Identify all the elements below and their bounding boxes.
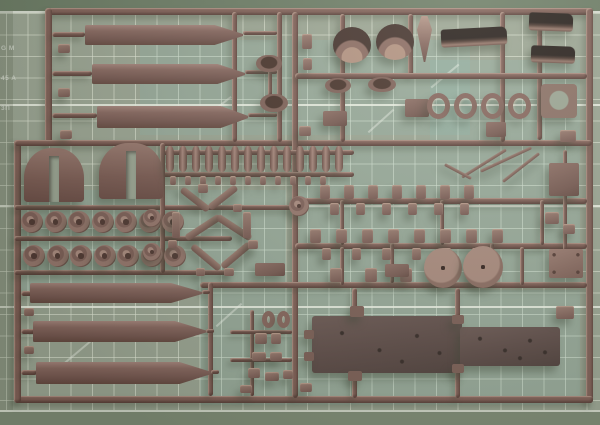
suspension-pin [205, 146, 213, 172]
rail-fitting [545, 212, 559, 224]
gate-stub [24, 308, 34, 316]
suspension-link [243, 212, 251, 238]
suspension-pin [283, 146, 291, 172]
hull-side-bar [97, 106, 248, 128]
small-fitting [320, 185, 330, 199]
small-fitting [362, 229, 373, 243]
road-wheel [23, 245, 45, 267]
hull-tab [304, 330, 314, 339]
fender-channel [441, 26, 508, 47]
rail-fitting [560, 130, 576, 142]
small-fitting [320, 176, 326, 185]
hull-side-bar [30, 283, 202, 303]
sprue-runner [200, 282, 587, 288]
small-fitting [270, 352, 282, 361]
sprue-runner [52, 32, 85, 37]
gate-stub [24, 346, 34, 354]
small-fitting [330, 268, 342, 282]
small-fitting [368, 185, 378, 199]
suspension-pin [309, 146, 317, 172]
photo-kit-sprue-on-cutting-mat: G M 45 A 3П [0, 0, 600, 425]
small-fitting [416, 185, 426, 199]
fender-arch [99, 143, 163, 199]
sprue-runner [208, 282, 213, 396]
fender-channel [531, 45, 576, 64]
small-fitting [275, 176, 281, 185]
hull-floor-plate [312, 316, 462, 373]
stowage-pod [260, 94, 288, 112]
sprue-runner [455, 288, 460, 318]
small-fitting [168, 240, 177, 248]
sprue-runner [21, 329, 35, 334]
road-wheel [164, 245, 186, 267]
suspension-pin [322, 146, 330, 172]
small-fitting [440, 185, 450, 199]
small-fitting [412, 248, 421, 260]
sprue-runner [14, 140, 592, 146]
small-fitting [248, 240, 258, 249]
sprue-runner [206, 329, 214, 333]
small-fitting [300, 383, 312, 392]
hull-tab [452, 364, 464, 373]
blade-part [417, 16, 432, 62]
hull-side-bar [85, 25, 243, 45]
sprue-runner [45, 8, 52, 146]
small-bracket [303, 58, 312, 70]
gate-stub [60, 130, 72, 139]
hull-floor-plate [460, 327, 560, 366]
small-wheel [143, 243, 161, 261]
small-fitting [382, 248, 391, 260]
sprue-runner [16, 396, 593, 403]
small-fitting [248, 368, 260, 378]
small-fitting [265, 372, 279, 381]
small-fitting [352, 248, 361, 260]
small-fitting [460, 203, 469, 215]
stowage-tub [325, 78, 351, 93]
small-fitting [356, 203, 365, 215]
small-fitting [310, 229, 321, 243]
small-fitting [271, 333, 281, 344]
suspension-arm [190, 243, 222, 272]
small-fitting [233, 204, 242, 212]
small-fitting [170, 176, 176, 185]
small-fitting [196, 268, 205, 276]
fender-arch [24, 148, 84, 202]
small-fitting [434, 203, 443, 215]
hatch-ring [508, 93, 531, 119]
small-fitting [492, 229, 503, 243]
access-plate [323, 111, 347, 126]
road-wheel [115, 211, 137, 233]
small-fitting [305, 176, 311, 185]
small-fitting [283, 370, 293, 379]
fender-channel [529, 12, 574, 32]
road-wheel [117, 245, 139, 267]
stowage-pod [256, 55, 282, 72]
sprue-runner [202, 290, 210, 294]
half-shell [376, 24, 414, 60]
sprue-layer [0, 0, 600, 425]
small-fitting [466, 229, 477, 243]
suspension-pin [270, 146, 278, 172]
equipment-box [405, 99, 429, 117]
small-fitting [215, 176, 221, 185]
gate-stub [58, 88, 70, 97]
sprocket-disc [424, 248, 462, 288]
hull-side-bar [33, 321, 206, 342]
suspension-pin [166, 146, 174, 172]
sprue-runner [586, 8, 593, 403]
suspension-pin [244, 146, 252, 172]
small-fitting [322, 248, 331, 260]
suspension-pin [257, 146, 265, 172]
small-bracket [299, 126, 311, 136]
small-fitting [255, 333, 267, 344]
suspension-pin [218, 146, 226, 172]
suspension-pin [231, 146, 239, 172]
small-fitting [245, 176, 251, 185]
small-fitting [252, 352, 266, 361]
road-wheel [47, 245, 69, 267]
road-wheel [70, 245, 92, 267]
hull-side-bar [92, 64, 245, 84]
small-fitting [185, 176, 191, 185]
road-wheel [68, 211, 90, 233]
small-fitting [382, 203, 391, 215]
bracket-wide [385, 264, 409, 277]
rail-fitting [556, 306, 574, 319]
equipment-plate [549, 163, 579, 196]
small-fitting [414, 229, 425, 243]
small-fitting [464, 185, 474, 199]
sprue-runner [211, 370, 219, 374]
small-fitting [198, 184, 208, 193]
suspension-pin [179, 146, 187, 172]
sprue-runner [277, 12, 282, 142]
small-fitting [408, 203, 417, 215]
bracket-trapezoid [255, 263, 285, 276]
small-wheel [143, 209, 161, 227]
pulley-wheel [289, 196, 309, 216]
small-fitting [388, 229, 399, 243]
suspension-pin [335, 146, 343, 172]
tow-loop [262, 311, 275, 328]
suspension-pin [192, 146, 200, 172]
small-fitting [290, 176, 296, 185]
sprue-runner [14, 236, 232, 241]
sprue-runner [48, 8, 593, 15]
sprue-runner [52, 71, 92, 76]
rail-fitting [563, 224, 575, 234]
hatch-ring [427, 93, 450, 119]
sprue-runner [248, 113, 277, 117]
hatch-ring [454, 93, 477, 119]
small-fitting [336, 229, 347, 243]
small-hatch [486, 122, 506, 137]
sprue-runner [21, 370, 37, 375]
hull-tab [350, 306, 364, 317]
half-shell [333, 27, 371, 63]
small-fitting [365, 268, 377, 282]
road-wheel [21, 211, 43, 233]
small-fitting [392, 185, 402, 199]
sprue-runner [540, 200, 544, 245]
hatch-ring [481, 93, 504, 119]
stowage-tub [368, 77, 396, 92]
riveted-hatch [549, 249, 583, 278]
hatch-plate-with-hole [541, 84, 577, 118]
sprue-runner [52, 113, 97, 118]
sprocket-disc [463, 246, 503, 288]
small-fitting [240, 385, 252, 393]
road-wheel [92, 211, 114, 233]
sprue-runner [520, 247, 524, 285]
road-wheel [94, 245, 116, 267]
small-bracket [302, 34, 312, 49]
small-fitting [224, 268, 234, 276]
small-fitting [230, 176, 236, 185]
small-fitting [330, 203, 339, 215]
small-fitting [344, 185, 354, 199]
road-wheel [45, 211, 67, 233]
suspension-pin [296, 146, 304, 172]
gate-stub [58, 44, 70, 53]
hull-side-bar [36, 362, 211, 384]
small-fitting [260, 176, 266, 185]
suspension-link [172, 212, 180, 238]
hull-tab [304, 352, 314, 361]
tow-loop [277, 311, 290, 328]
sprue-runner [243, 31, 277, 35]
small-fitting [440, 229, 451, 243]
hull-tab [452, 315, 464, 324]
hull-tab [348, 371, 362, 381]
